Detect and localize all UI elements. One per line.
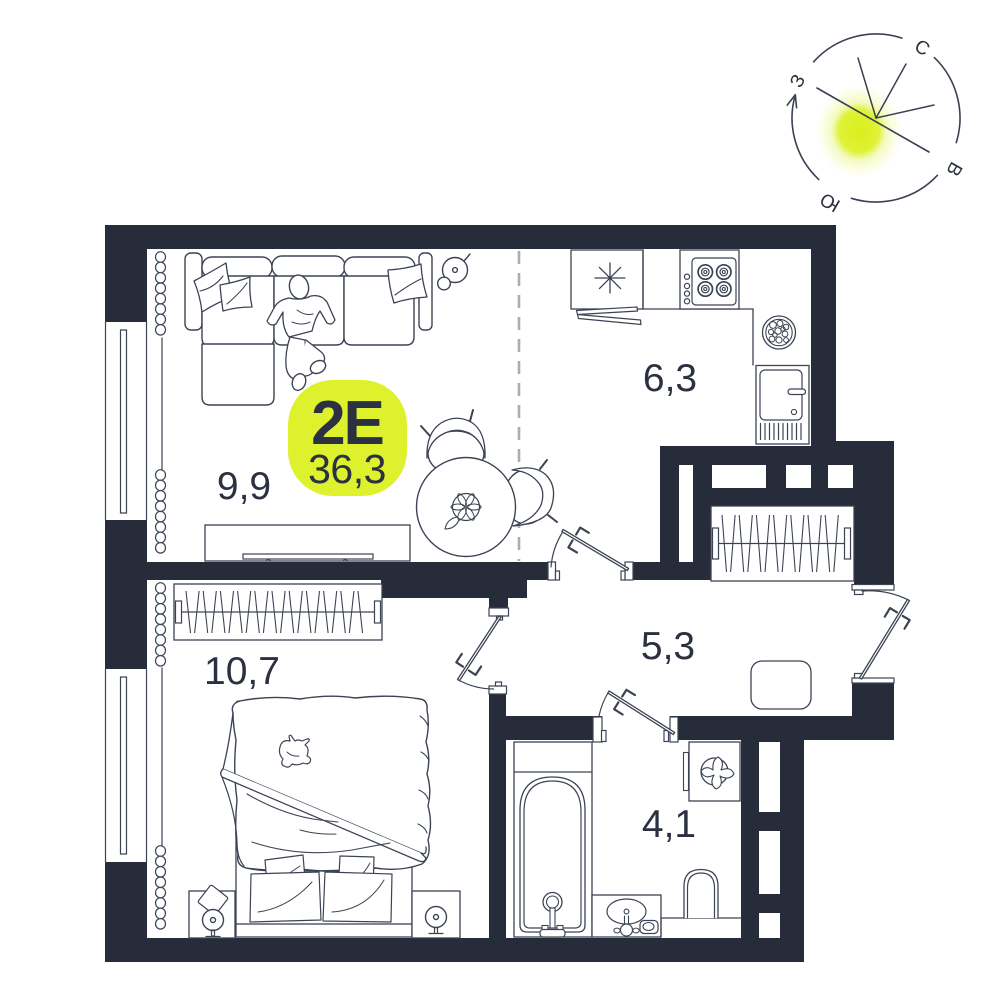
svg-text:10,7: 10,7 <box>204 650 280 693</box>
svg-text:9,9: 9,9 <box>217 465 271 508</box>
svg-text:6,3: 6,3 <box>643 357 697 400</box>
svg-text:5,3: 5,3 <box>641 625 695 668</box>
svg-text:4,1: 4,1 <box>642 803 696 846</box>
svg-text:36,3: 36,3 <box>308 446 386 492</box>
